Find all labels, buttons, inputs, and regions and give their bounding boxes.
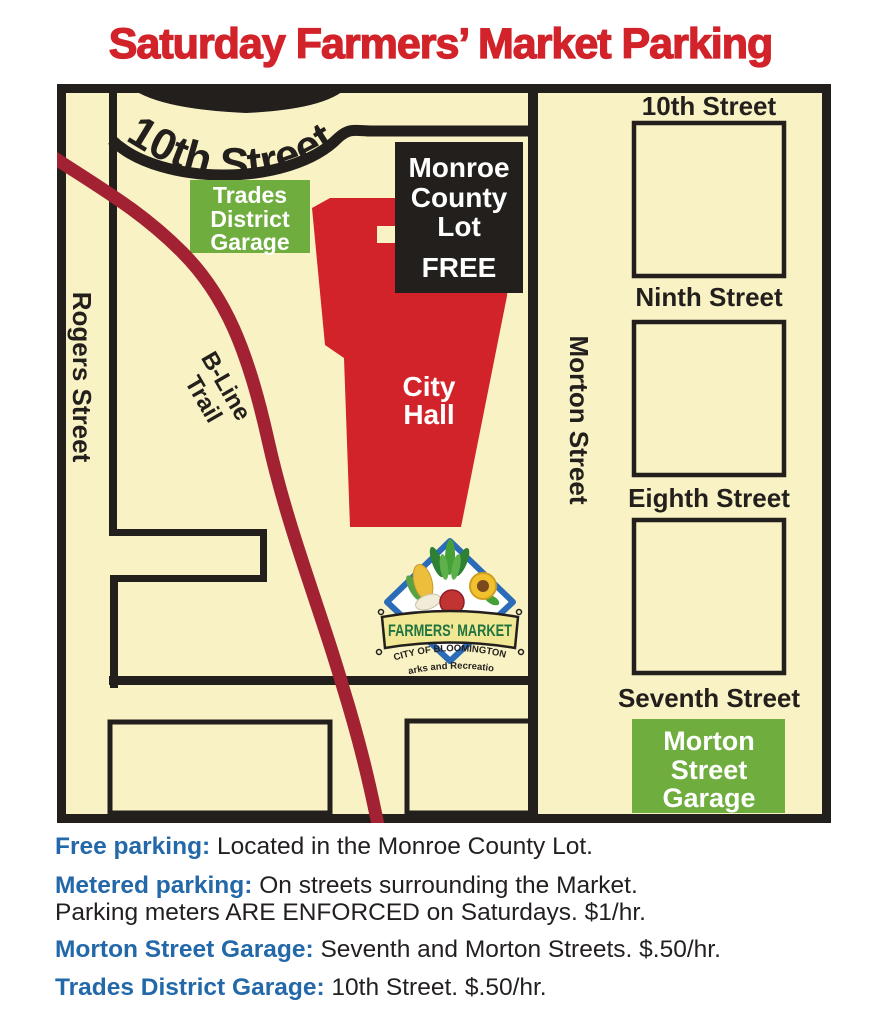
svg-text:Monroe: Monroe [408, 152, 509, 183]
legend-trades-garage: Trades District Garage: 10th Street. $.5… [55, 974, 547, 1001]
svg-text:Street: Street [671, 755, 748, 785]
label-10th-street: 10th Street [642, 91, 777, 121]
morton-street-garage-label: Morton Street Garage [662, 726, 755, 813]
legend-metered-parking-label: Metered parking: [55, 872, 252, 899]
logo-sunflower-center-icon [477, 580, 489, 592]
legend-free-parking: Free parking: Located in the Monroe Coun… [55, 833, 593, 860]
trades-district-garage-label: Trades District Garage [210, 182, 290, 255]
morton-street-label: Morton Street [564, 336, 594, 505]
rogers-street-label: Rogers Street [67, 292, 97, 463]
legend-trades-garage-label: Trades District Garage: [55, 974, 325, 1001]
legend-trades-garage-text: 10th Street. $.50/hr. [325, 974, 547, 1001]
city-hall-notch [377, 226, 395, 243]
parking-flyer: Saturday Farmers’ Market Parking 10th St… [0, 0, 881, 1024]
city-hall-label: City Hall [403, 371, 456, 430]
side-street-vertical [110, 575, 118, 688]
legend-metered-parking: Metered parking: On streets surrounding … [55, 872, 646, 926]
seventh-street-road [109, 676, 536, 685]
legend-metered-parking-text: On streets surrounding the Market. [252, 872, 637, 899]
svg-text:Garage: Garage [662, 783, 755, 813]
svg-text:Trades: Trades [213, 182, 287, 208]
svg-text:City: City [403, 371, 456, 402]
legend-morton-garage-label: Morton Street Garage: [55, 936, 314, 963]
side-street-lower [110, 575, 267, 582]
side-street-connector [260, 529, 267, 582]
svg-text:Morton: Morton [663, 726, 754, 756]
legend-free-parking-text: Located in the Monroe County Lot. [210, 833, 593, 860]
logo-banner-text: FARMERS' MARKET [388, 622, 512, 640]
page-title: Saturday Farmers’ Market Parking [0, 20, 881, 69]
svg-text:County: County [411, 182, 508, 213]
svg-text:FREE: FREE [422, 252, 497, 283]
label-seventh-street: Seventh Street [618, 683, 800, 713]
side-street-upper [109, 529, 267, 536]
parking-map: 10th Street 10th Street Ninth Street Eig… [57, 84, 831, 823]
label-eighth-street: Eighth Street [628, 483, 790, 513]
svg-text:Lot: Lot [437, 211, 481, 242]
legend-metered-parking-line2: Parking meters ARE ENFORCED on Saturdays… [55, 899, 646, 926]
legend-morton-garage-text: Seventh and Morton Streets. $.50/hr. [314, 936, 721, 963]
svg-text:Hall: Hall [403, 399, 454, 430]
morton-street-road [528, 84, 538, 823]
legend-morton-garage: Morton Street Garage: Seventh and Morton… [55, 936, 721, 963]
rogers-street-road [109, 84, 117, 536]
label-ninth-street: Ninth Street [635, 282, 783, 312]
svg-text:Garage: Garage [210, 229, 289, 255]
legend-free-parking-label: Free parking: [55, 833, 210, 860]
